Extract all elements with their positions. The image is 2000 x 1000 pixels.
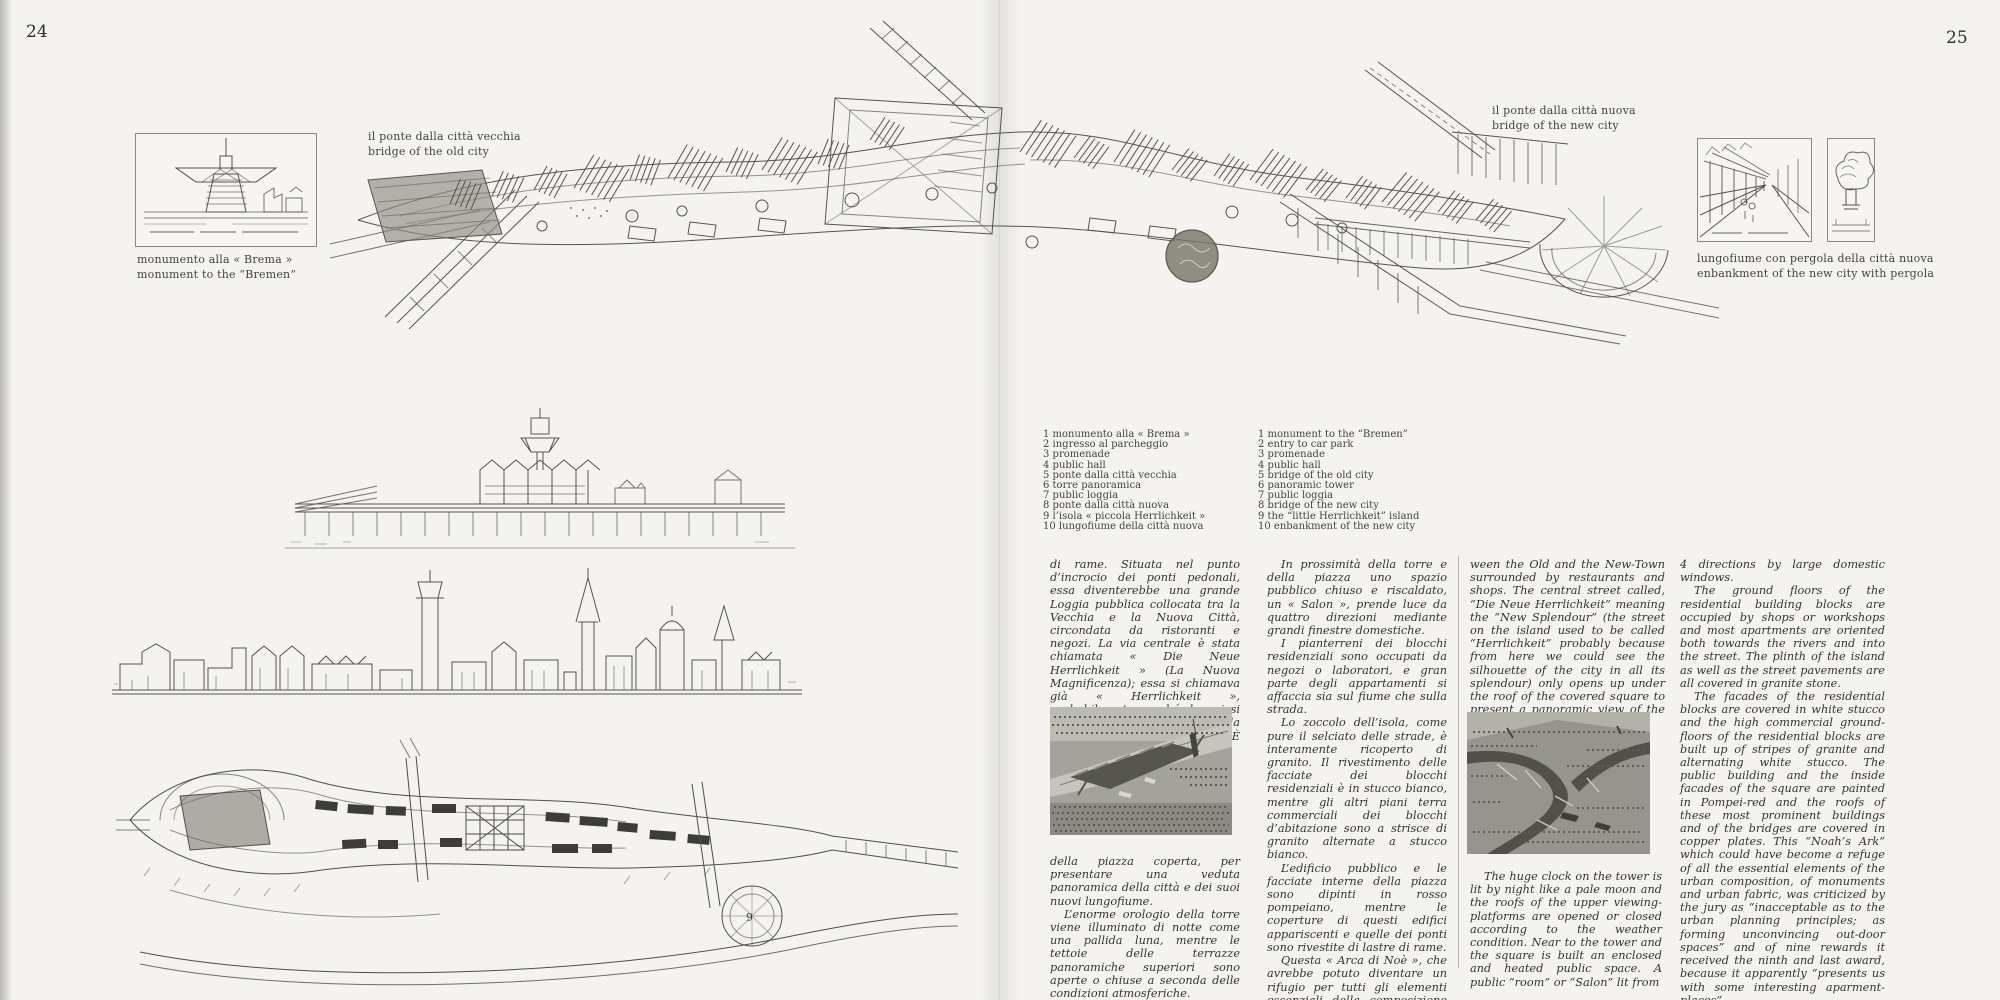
- pergola-perspective-drawing: [1697, 138, 1812, 242]
- axonometric-island-drawing: [330, 12, 1720, 390]
- legend-english: 1 monument to the “Bremen” 2 entry to ca…: [1258, 430, 1419, 532]
- aerial-photo-old-city: [1050, 707, 1232, 835]
- caption-new-bridge-en: bridge of the new city: [1492, 118, 1636, 133]
- city-skyline-elevation-drawing: [112, 552, 802, 702]
- caption-embankment-it: lungofiume con pergola della città nuova: [1697, 251, 1934, 266]
- caption-monument-en: monument to the “Bremen”: [137, 267, 296, 282]
- caption-embankment: lungofiume con pergola della città nuova…: [1697, 251, 1934, 281]
- caption-monument: monumento alla « Brema » monument to the…: [137, 252, 296, 282]
- article-col2: In prossimità della torre e della piazza…: [1267, 558, 1447, 1000]
- site-plan-drawing: 9: [110, 700, 960, 990]
- page-number-right: 25: [1946, 28, 1968, 48]
- caption-monument-it: monumento alla « Brema »: [137, 252, 296, 267]
- book-spread: 24 25: [0, 0, 2000, 1000]
- paragraph: L’edificio pubblico e le facciate intern…: [1267, 862, 1447, 954]
- paragraph: ween the Old and the New-Town surrounded…: [1470, 558, 1665, 730]
- caption-old-bridge: il ponte dalla città vecchia bridge of t…: [368, 129, 521, 159]
- section-elevation-drawing: [285, 408, 795, 568]
- paragraph: 4 directions by large domestic windows.: [1680, 558, 1885, 584]
- caption-old-bridge-it: il ponte dalla città vecchia: [368, 129, 521, 144]
- paragraph: In prossimità della torre e della piazza…: [1267, 558, 1447, 637]
- paragraph: The huge clock on the tower is lit by ni…: [1470, 870, 1662, 989]
- paragraph: L’enorme orologio della torre viene illu…: [1050, 908, 1240, 1000]
- scan-edge-shadow: [0, 0, 12, 1000]
- paragraph: The ground floors of the residential bui…: [1680, 584, 1885, 690]
- language-divider-rule: [1458, 556, 1459, 968]
- legend-italian: 1 monumento alla « Brema » 2 ingresso al…: [1043, 430, 1205, 532]
- plan-label-9: 9: [746, 911, 753, 924]
- article-col3-top: ween the Old and the New-Town surrounded…: [1470, 558, 1665, 730]
- caption-new-bridge: il ponte dalla città nuova bridge of the…: [1492, 103, 1636, 133]
- article-col3-bottom: The huge clock on the tower is lit by ni…: [1470, 870, 1662, 989]
- legend-en-10: 10 enbankment of the new city: [1258, 522, 1419, 532]
- paragraph: Questa « Arca di Noè », che avrebbe potu…: [1267, 954, 1447, 1000]
- caption-new-bridge-it: il ponte dalla città nuova: [1492, 103, 1636, 118]
- article-col1-bottom: della piazza coperta, per presentare una…: [1050, 855, 1240, 1000]
- monument-elevation-drawing: [135, 133, 317, 247]
- embankment-trees-drawing: [1827, 138, 1875, 242]
- paragraph: The facades of the residential blocks ar…: [1680, 690, 1885, 1000]
- paragraph: Lo zoccolo dell’isola, come pure il selc…: [1267, 716, 1447, 861]
- legend-it-10: 10 lungofiume della città nuova: [1043, 522, 1205, 532]
- caption-embankment-en: enbankment of the new city with pergola: [1697, 266, 1934, 281]
- aerial-photo-rivers: [1467, 712, 1650, 854]
- page-number-left: 24: [26, 22, 48, 42]
- paragraph: della piazza coperta, per presentare una…: [1050, 855, 1240, 908]
- caption-old-bridge-en: bridge of the old city: [368, 144, 521, 159]
- paragraph: I pianterreni dei blocchi residenziali s…: [1267, 637, 1447, 716]
- article-col4: 4 directions by large domestic windows. …: [1680, 558, 1885, 1000]
